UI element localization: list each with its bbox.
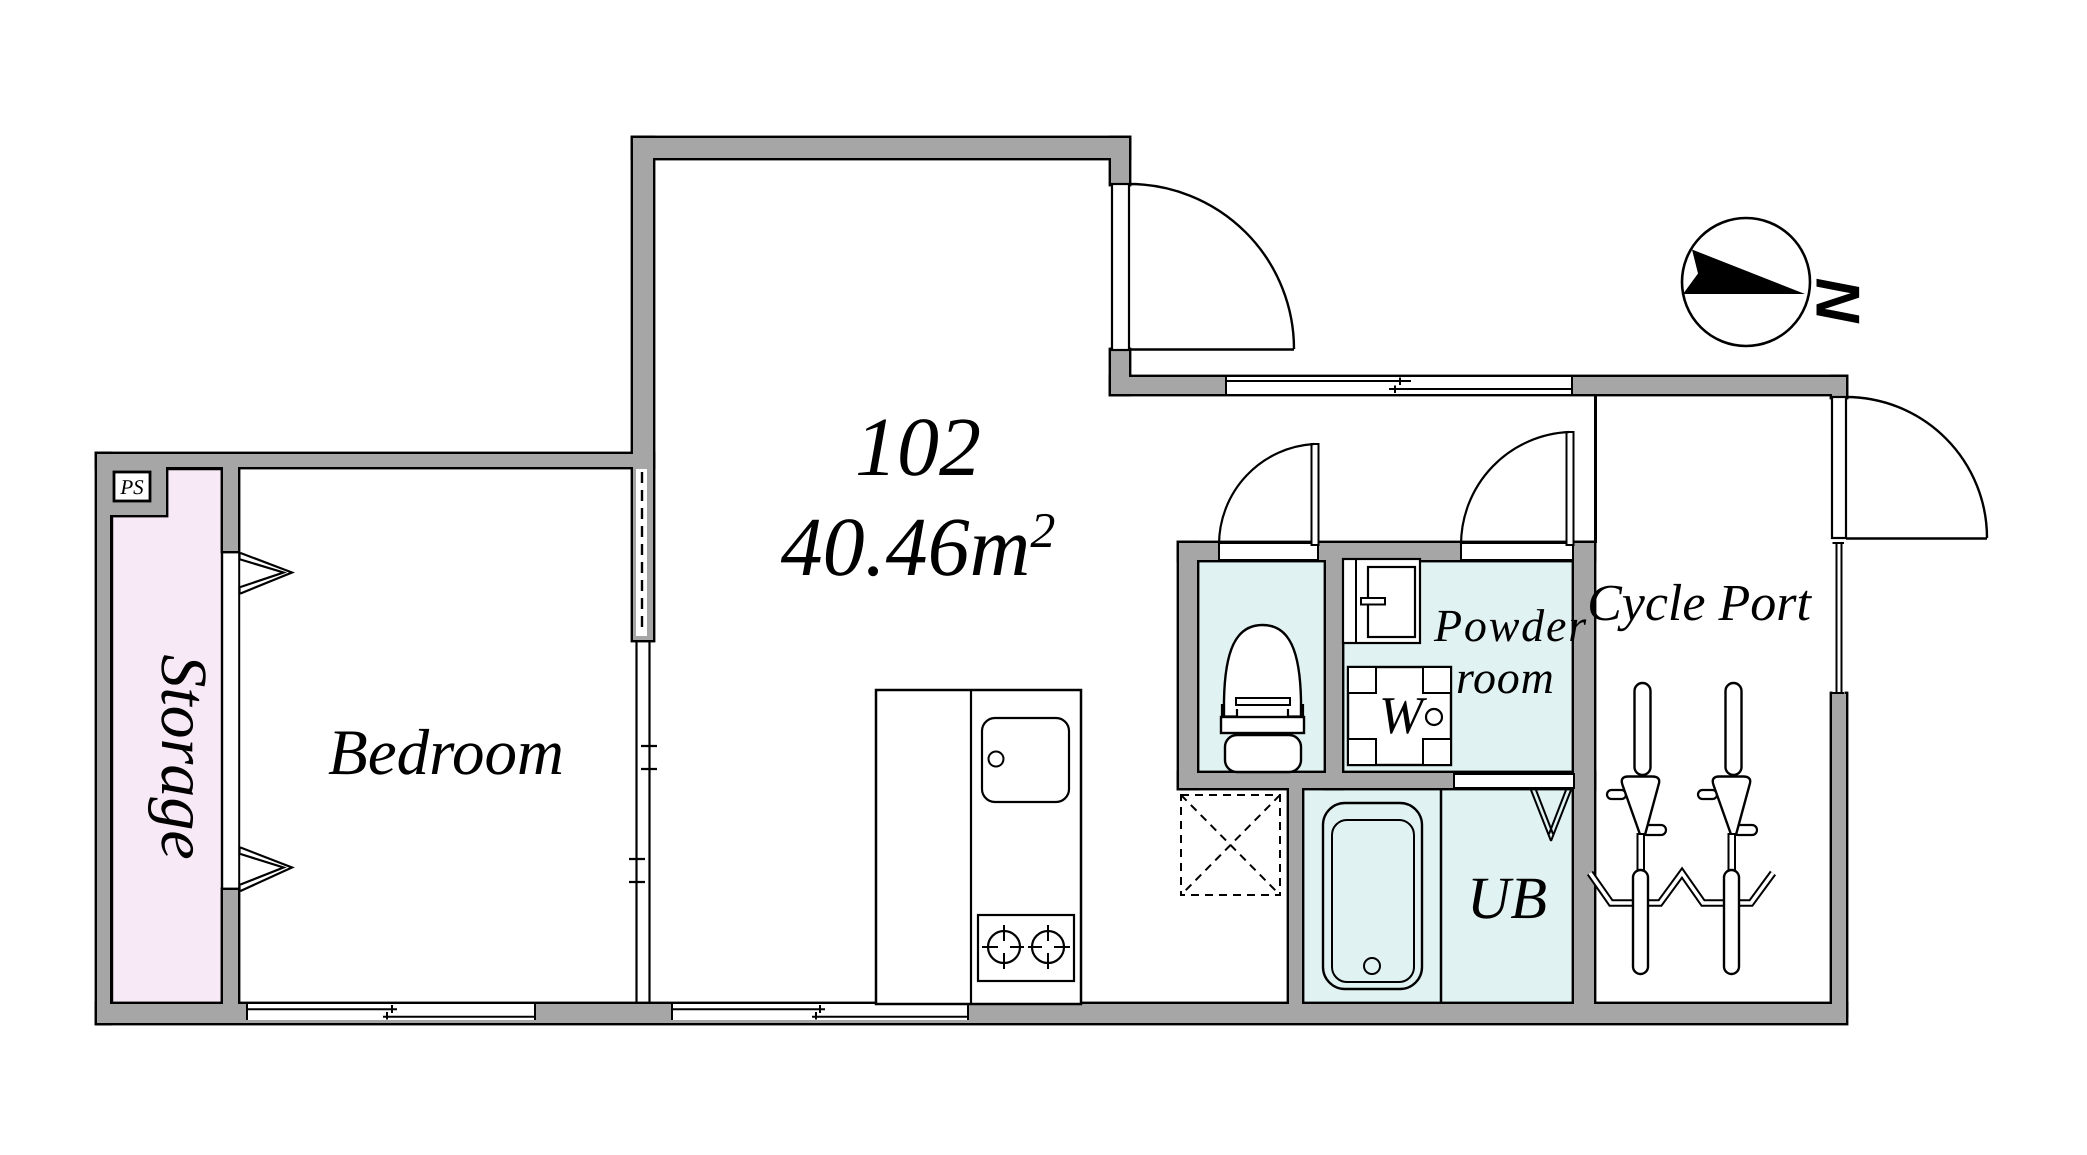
svg-text:UB: UB [1467, 865, 1547, 931]
svg-text:Storage: Storage [147, 654, 220, 859]
svg-text:102: 102 [855, 401, 981, 494]
svg-text:PS: PS [119, 475, 144, 499]
svg-text:Cycle Port: Cycle Port [1587, 575, 1812, 632]
svg-text:W: W [1379, 687, 1428, 745]
svg-text:N: N [1803, 278, 1872, 324]
svg-text:40.46m2: 40.46m2 [781, 501, 1056, 594]
svg-text:room: room [1456, 652, 1555, 703]
svg-text:Powder: Powder [1433, 600, 1588, 651]
svg-text:Bedroom: Bedroom [328, 717, 564, 789]
